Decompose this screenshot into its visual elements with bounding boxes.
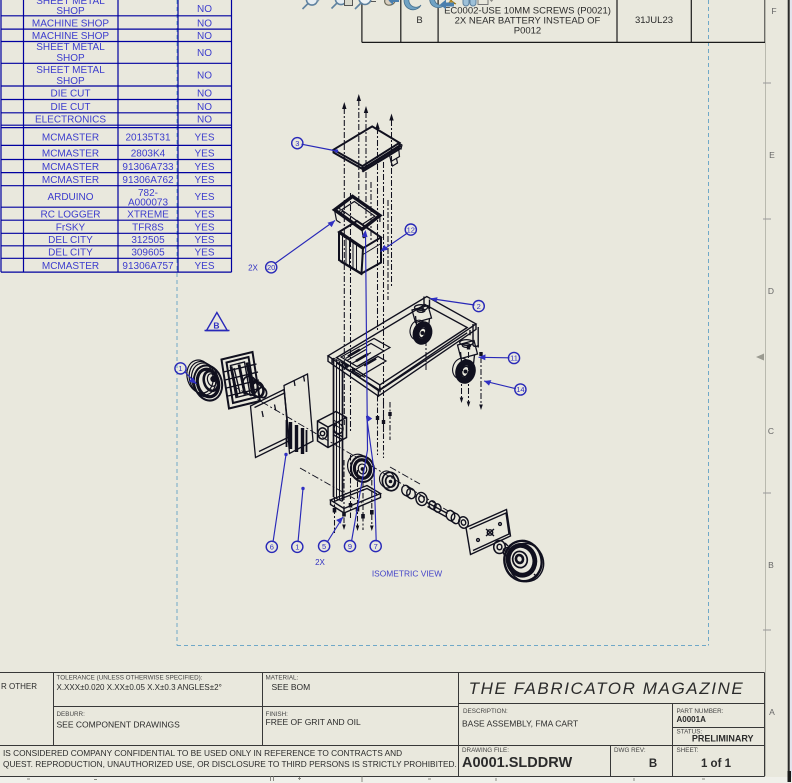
svg-text:A: A	[769, 707, 775, 717]
svg-text:MCMASTER: MCMASTER	[42, 175, 99, 186]
svg-text:B: B	[768, 560, 774, 570]
svg-text:PART NUMBER:: PART NUMBER:	[677, 708, 724, 715]
svg-text:FREE OF GRIT AND OIL: FREE OF GRIT AND OIL	[266, 717, 362, 727]
svg-text:9: 9	[348, 542, 352, 551]
svg-text:ARDUINO: ARDUINO	[47, 192, 93, 203]
svg-text:MACHINE SHOP: MACHINE SHOP	[32, 31, 110, 42]
svg-text:DEL CITY: DEL CITY	[48, 248, 93, 259]
svg-text:91306A733: 91306A733	[122, 162, 174, 173]
svg-text:2803K4: 2803K4	[131, 149, 166, 160]
svg-text:R OTHER: R OTHER	[1, 682, 37, 691]
svg-text:YES: YES	[194, 261, 214, 272]
svg-text:SEE COMPONENT DRAWINGS: SEE COMPONENT DRAWINGS	[57, 720, 181, 730]
svg-text:SHOP: SHOP	[56, 76, 85, 87]
svg-text:ELECTRONICS: ELECTRONICS	[35, 115, 106, 126]
svg-text:DWG REV:: DWG REV:	[614, 747, 646, 754]
svg-text:YES: YES	[194, 210, 214, 221]
svg-text:DRAWING FILE:: DRAWING FILE:	[462, 747, 509, 754]
svg-text:2X: 2X	[315, 558, 325, 567]
svg-text:PRELIMINARY: PRELIMINARY	[692, 734, 754, 744]
svg-text:2X: 2X	[248, 264, 258, 273]
svg-text:NO: NO	[197, 71, 212, 82]
svg-text:DIE CUT: DIE CUT	[51, 89, 91, 100]
svg-text:ISOMETRIC VIEW: ISOMETRIC VIEW	[372, 569, 442, 579]
svg-text:YES: YES	[194, 235, 214, 246]
svg-text:B: B	[649, 758, 657, 770]
svg-text:SEE BOM: SEE BOM	[272, 682, 311, 692]
svg-text:E: E	[769, 150, 775, 160]
svg-text:NO: NO	[197, 19, 212, 30]
svg-text:91306A757: 91306A757	[122, 261, 174, 272]
svg-text:MCMASTER: MCMASTER	[42, 261, 99, 272]
svg-text:20: 20	[267, 263, 275, 272]
svg-text:DESCRIPTION:: DESCRIPTION:	[463, 708, 508, 715]
svg-text:312505: 312505	[131, 235, 165, 246]
svg-text:NO: NO	[197, 48, 212, 59]
svg-text:IS CONSIDERED COMPANY CONFIDEN: IS CONSIDERED COMPANY CONFIDENTIAL TO BE…	[3, 748, 402, 758]
svg-text:14: 14	[516, 385, 524, 394]
svg-text:A000073: A000073	[128, 198, 168, 209]
svg-text:NO: NO	[197, 31, 212, 42]
svg-text:C: C	[768, 426, 774, 436]
svg-text:THE FABRICATOR MAGAZINE: THE FABRICATOR MAGAZINE	[469, 679, 745, 698]
svg-text:2: 2	[477, 302, 481, 311]
svg-text:MCMASTER: MCMASTER	[42, 162, 99, 173]
svg-text:91306A762: 91306A762	[122, 175, 174, 186]
svg-text:YES: YES	[194, 192, 214, 203]
svg-text:NO: NO	[197, 115, 212, 126]
svg-text:1: 1	[178, 364, 182, 373]
svg-text:6: 6	[270, 543, 274, 552]
svg-text:SHEET:: SHEET:	[677, 747, 699, 754]
svg-text:DEL CITY: DEL CITY	[48, 235, 93, 246]
svg-text:TFR8S: TFR8S	[132, 223, 164, 234]
svg-text:B: B	[416, 15, 422, 26]
svg-text:A0001.SLDDRW: A0001.SLDDRW	[462, 755, 572, 771]
svg-text:YES: YES	[194, 248, 214, 259]
svg-text:5: 5	[322, 542, 326, 551]
svg-text:X.XXX±0.020 X.XX±0.05 X.X±0.3: X.XXX±0.020 X.XX±0.05 X.X±0.3 ANGLES±2°	[57, 683, 222, 692]
svg-text:SHEET METAL: SHEET METAL	[36, 42, 105, 53]
svg-text:12: 12	[407, 225, 415, 234]
svg-text:BASE ASSEMBLY, FMA CART: BASE ASSEMBLY, FMA CART	[462, 719, 578, 729]
svg-text:SHEET METAL: SHEET METAL	[36, 65, 105, 76]
svg-text:DIE CUT: DIE CUT	[51, 102, 91, 113]
svg-text:YES: YES	[194, 162, 214, 173]
svg-text:RC LOGGER: RC LOGGER	[40, 210, 100, 221]
svg-text:MCMASTER: MCMASTER	[42, 133, 99, 144]
svg-text:309605: 309605	[131, 248, 165, 259]
svg-text:F: F	[771, 6, 776, 16]
svg-text:YES: YES	[194, 223, 214, 234]
svg-text:B: B	[213, 321, 219, 331]
svg-text:1 of 1: 1 of 1	[701, 758, 732, 770]
svg-text:20135T31: 20135T31	[125, 133, 170, 144]
svg-text:3: 3	[295, 139, 299, 148]
svg-text:YES: YES	[194, 175, 214, 186]
svg-text:QUEST. REPRODUCTION, UNAUTHOR: QUEST. REPRODUCTION, UNAUTHORIZED USE, O…	[3, 759, 457, 769]
svg-text:SHOP: SHOP	[56, 53, 85, 64]
svg-text:P0012: P0012	[514, 26, 541, 37]
svg-text:31JUL23: 31JUL23	[635, 15, 673, 26]
svg-text:7: 7	[374, 542, 378, 551]
svg-text:YES: YES	[194, 149, 214, 160]
svg-text:MCMASTER: MCMASTER	[42, 149, 99, 160]
svg-text:NO: NO	[197, 4, 212, 15]
svg-text:1: 1	[295, 543, 299, 552]
svg-text:SHOP: SHOP	[56, 6, 85, 17]
svg-text:NO: NO	[197, 102, 212, 113]
svg-text:NO: NO	[197, 89, 212, 100]
svg-text:TOLERANCE (UNLESS OTHERWISE SP: TOLERANCE (UNLESS OTHERWISE SPECIFIED):	[57, 675, 203, 682]
svg-text:MATERIAL:: MATERIAL:	[266, 675, 299, 682]
svg-text:11: 11	[510, 354, 518, 363]
svg-text:YES: YES	[194, 133, 214, 144]
svg-text:FrSKY: FrSKY	[56, 223, 86, 234]
svg-text:A0001A: A0001A	[677, 715, 707, 724]
svg-text:MACHINE SHOP: MACHINE SHOP	[32, 19, 110, 30]
svg-text:DEBURR:: DEBURR:	[57, 711, 86, 718]
svg-text:XTREME: XTREME	[127, 210, 169, 221]
svg-text:D: D	[768, 286, 774, 296]
